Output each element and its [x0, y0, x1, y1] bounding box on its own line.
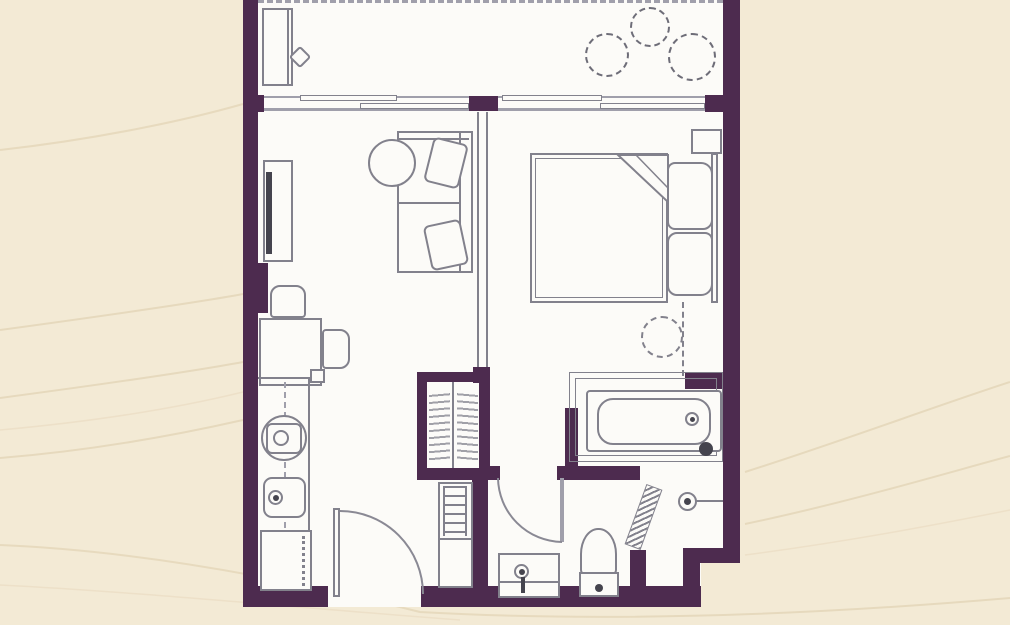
- bathroom-door-swing-arc: [498, 478, 562, 542]
- entry-door-swing-arc: [340, 511, 423, 594]
- arc-overlay: [0, 0, 1010, 625]
- floor-plan: [0, 0, 1010, 625]
